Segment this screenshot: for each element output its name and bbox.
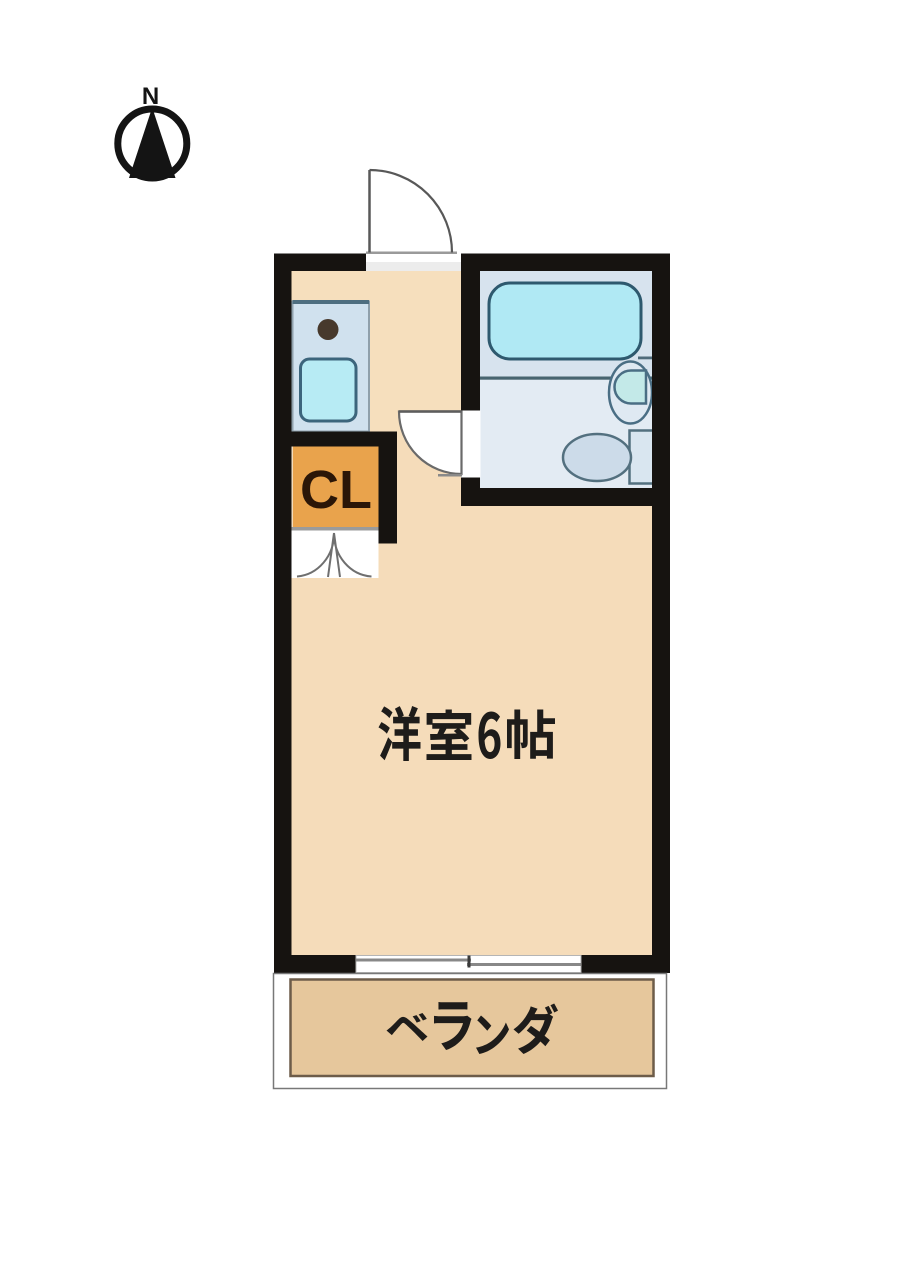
svg-text:CL: CL — [300, 460, 372, 520]
svg-text:N: N — [142, 83, 159, 110]
